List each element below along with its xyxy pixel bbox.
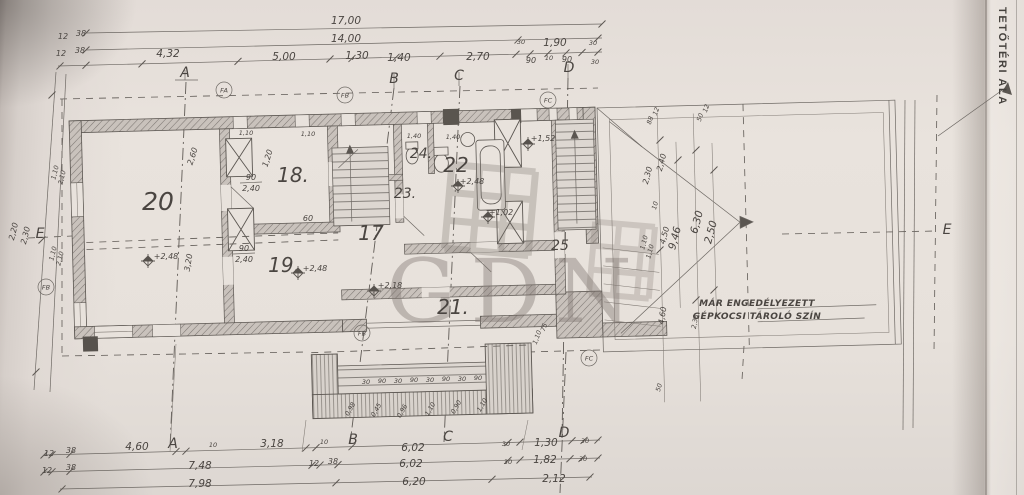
plan-text: 4,32 [156, 48, 180, 60]
plan-text: 50 [695, 112, 705, 123]
plan-text: 1,40 [407, 132, 421, 140]
plan-text: 2,60 [186, 146, 200, 166]
plan-text: 30 [426, 376, 434, 384]
plan-text: +2,18 [378, 281, 403, 290]
dim-fraction-bottom: 2,40 [235, 255, 253, 264]
balcony [311, 343, 533, 419]
plan-text: 30 [589, 39, 597, 47]
plan-text: 90 [410, 376, 418, 384]
plan-text: 12 [44, 449, 54, 458]
plan-text: 12 [58, 32, 68, 41]
plan-text: 1,40 [446, 133, 460, 141]
plan-text: 1,10 [301, 130, 315, 138]
plan-text: GÉPKOCSI TÁROLÓ SZÍN [693, 310, 822, 322]
plan-text: D [564, 60, 575, 76]
plan-text: 90 [474, 374, 482, 382]
plan-text: 38 [75, 46, 85, 55]
plan-text: 90 [442, 375, 450, 383]
watermark-text: GDN [386, 240, 646, 343]
sink [461, 132, 475, 146]
plan-text: 10 [209, 441, 217, 449]
plan-text: 7,48 [188, 460, 212, 472]
plan-text: 14,00 [331, 33, 361, 45]
plan-text: 38 [328, 457, 338, 466]
plan-text: 3,20 [183, 253, 195, 272]
plan-text: 30 [504, 458, 512, 466]
plan-text: 50 [654, 382, 664, 392]
plan-text: A [167, 436, 178, 452]
fold-shadow [985, 0, 987, 495]
plan-text: 1,30 [345, 50, 369, 62]
plan-text: 30 [394, 377, 402, 385]
plan-text: +2,48 [303, 264, 328, 273]
plan-text: +1,02 [489, 208, 514, 217]
stair-right [555, 119, 596, 230]
dim-tick [675, 157, 682, 164]
plan-text: 2,40 [655, 153, 668, 173]
plan-text: 90 [526, 56, 536, 65]
plan-text: 10 [320, 438, 328, 446]
plan-text: 22 [443, 153, 468, 177]
plan-text: +2,48 [460, 177, 485, 186]
plan-text: 60 [303, 214, 313, 223]
node-marker-label: FC [544, 97, 553, 105]
plan-text: 20 [142, 187, 174, 216]
plan-text: 2,50 [702, 219, 720, 245]
plan-text: 1,82 [533, 454, 557, 466]
plan-text: +1,52 [531, 134, 556, 143]
stair-main [332, 144, 390, 226]
plan-text: 30 [362, 378, 370, 386]
plan-text: 10 [545, 54, 553, 62]
plan-text: MÁR ENGEDÉLYEZETT [699, 297, 815, 309]
plan-text: B [348, 432, 358, 448]
plan-text: 30 [581, 437, 589, 445]
plan-text: 18. [277, 163, 309, 187]
plan-text: 17 [358, 221, 384, 245]
plan-text: D [559, 425, 570, 441]
watermark: GDN [386, 164, 655, 343]
plan-text: 1,30 [534, 437, 558, 449]
plan-text: 17,00 [331, 15, 361, 27]
plan-text: C [454, 68, 464, 84]
plan-text: E [36, 226, 45, 242]
plan-text: 3,18 [260, 438, 284, 450]
level-mark-fill [143, 256, 153, 261]
plan-text: 88 [645, 115, 655, 126]
dim-tick [657, 247, 664, 254]
plan-text: 30 [591, 58, 599, 66]
plan-text: 6,30 [688, 209, 706, 235]
plan-text: 12 [701, 103, 711, 114]
plan-text: 2,30 [641, 166, 654, 186]
dim-fraction-bottom: 2,40 [242, 184, 260, 193]
dim-fraction-top: 90 [246, 173, 256, 182]
plan-text: 1,10 [239, 129, 253, 137]
plan-text: 1,90 [543, 37, 567, 49]
plan-text: A [179, 65, 190, 81]
title-block-border [1016, 0, 1017, 495]
plan-text: 23. [394, 186, 416, 202]
plan-text: 2,20 [7, 222, 20, 241]
node-marker-label: FC [585, 355, 594, 363]
plan-text: 2,12 [542, 473, 566, 485]
floor-plan-drawing: GDN 17,0014,004,325,001,301,402,701,9030… [0, 0, 1024, 495]
plan-text: 25 [551, 238, 569, 254]
plan-text: 30 [517, 38, 525, 46]
plan-text: 24. [410, 146, 432, 162]
plan-text: 7,98 [188, 478, 212, 490]
plan-text: 1,20 [261, 148, 275, 168]
plan-text: 21. [437, 295, 469, 319]
dim-fraction-top: 90 [239, 244, 249, 253]
plan-text: 38 [66, 463, 76, 472]
plan-text: 90 [378, 377, 386, 385]
plan-text: +2,48 [154, 252, 179, 261]
plan-text: 4,60 [125, 441, 149, 453]
plan-text: 30 [458, 375, 466, 383]
node-marker-label: FA [220, 87, 228, 95]
plan-text: 2,70 [466, 51, 490, 63]
plan-text: E [943, 222, 952, 238]
dim-tick [33, 369, 40, 376]
plan-text: 38 [76, 29, 86, 38]
dim-fraction-bar [240, 182, 262, 183]
plan-text: 12 [56, 49, 66, 58]
plan-text: 12 [309, 459, 319, 468]
plan-text: C [443, 429, 453, 445]
node-marker-label: FB [42, 284, 51, 292]
side-title: TETŐTÉRI ALA [996, 7, 1008, 177]
dim-tick [711, 287, 718, 294]
node-marker-label: FB [341, 92, 350, 100]
dim-tick [693, 147, 700, 154]
plan-text: 30 [502, 440, 510, 448]
plan-text: 6,02 [401, 442, 425, 454]
plan-text: 12 [651, 106, 661, 117]
plan-text: 12 [42, 466, 52, 475]
plan-text: 5,00 [272, 51, 296, 63]
plan-text: 2,30 [19, 226, 32, 245]
dim-fraction-bar [233, 253, 255, 254]
plan-text: 38 [66, 446, 76, 455]
plan-text: 30 [579, 455, 587, 463]
plan-text: 6,02 [399, 458, 423, 470]
node-marker-label: FB [358, 330, 367, 338]
plan-text: B [389, 71, 399, 87]
plan-text: 10 [650, 200, 660, 210]
dim-tick [711, 167, 718, 174]
plan-text: 6,20 [402, 476, 426, 488]
plan-text: 1,40 [387, 52, 411, 64]
